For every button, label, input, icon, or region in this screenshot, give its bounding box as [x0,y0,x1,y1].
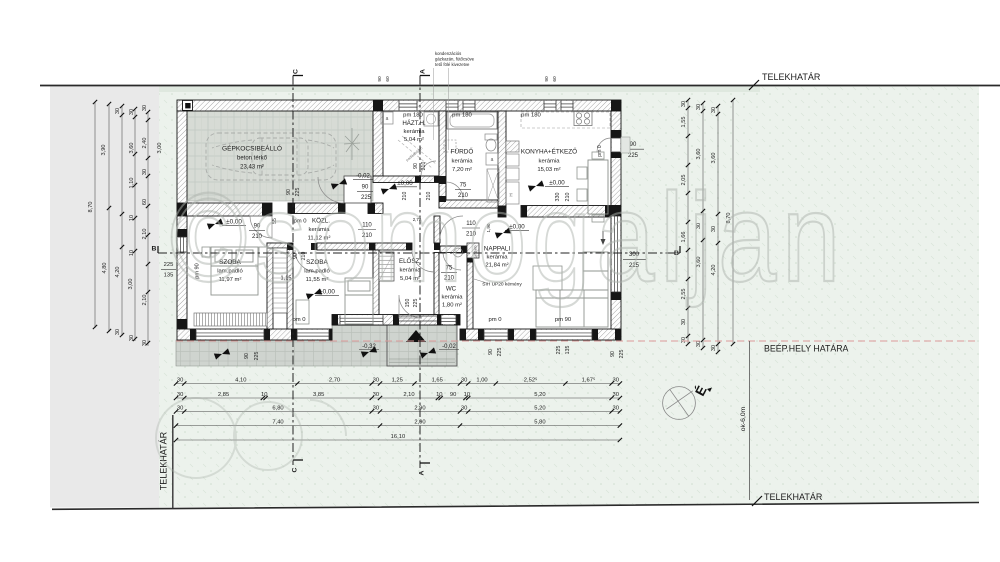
svg-text:©somogaljan: ©somogaljan [170,167,846,308]
svg-text:30: 30 [177,392,183,398]
svg-text:7,40: 7,40 [272,419,283,425]
svg-text:30: 30 [115,108,121,114]
svg-text:225: 225 [556,346,562,355]
svg-text:beton térkő: beton térkő [237,156,268,162]
svg-text:HÁZT.H.: HÁZT.H. [402,120,426,127]
svg-text:GÉPKOCSIBEÁLLÓ: GÉPKOCSIBEÁLLÓ [222,144,282,153]
svg-text:2,10: 2,10 [403,392,414,398]
svg-text:30: 30 [696,104,702,110]
svg-text:3,60: 3,60 [129,143,135,154]
svg-text:10: 10 [464,392,470,398]
svg-text:30: 30 [681,101,687,107]
svg-text:30: 30 [696,341,702,347]
svg-text:tető fölé kivezetve: tető fölé kivezetve [435,62,470,67]
svg-text:1,00: 1,00 [476,377,487,383]
svg-text:a: a [491,157,494,163]
svg-text:8,70: 8,70 [88,202,94,213]
svg-text:5,20: 5,20 [534,392,545,398]
svg-text:225: 225 [619,350,625,359]
svg-text:30: 30 [373,377,379,383]
svg-text:4,10: 4,10 [235,377,246,383]
svg-text:10: 10 [436,392,442,398]
svg-text:pm 0: pm 0 [292,317,306,323]
svg-text:30: 30 [461,377,467,383]
svg-text:10: 10 [261,392,267,398]
svg-text:3,00: 3,00 [157,143,163,154]
svg-text:2,10: 2,10 [142,229,148,240]
svg-text:60: 60 [385,76,391,82]
svg-text:2,10: 2,10 [142,295,148,306]
svg-text:30: 30 [613,392,619,398]
svg-text:2,70: 2,70 [329,377,340,383]
svg-text:FÜRDŐ: FÜRDŐ [451,147,474,156]
svg-text:30: 30 [461,405,467,411]
svg-text:kerámia: kerámia [452,159,474,165]
svg-text:KONYHA+ÉTKEZŐ: KONYHA+ÉTKEZŐ [521,147,577,156]
svg-text:10: 10 [129,215,135,221]
svg-text:30: 30 [142,105,148,111]
svg-text:-0,02: -0,02 [442,344,456,350]
svg-text:pm 90: pm 90 [555,317,572,323]
svg-text:TELEKHATÁR: TELEKHATÁR [764,492,823,502]
svg-text:30: 30 [115,329,121,335]
svg-text:3,85: 3,85 [313,392,324,398]
svg-text:4,20: 4,20 [115,267,121,278]
svg-text:pm 180: pm 180 [452,113,472,119]
svg-text:90: 90 [450,392,456,398]
svg-text:B: B [152,246,157,253]
svg-text:5,20: 5,20 [534,405,545,411]
svg-text:4,80: 4,80 [102,263,108,274]
svg-text:kerámia: kerámia [404,129,426,135]
svg-text:30: 30 [373,405,379,411]
svg-text:kondenzációs: kondenzációs [435,51,461,56]
svg-text:90: 90 [488,349,494,355]
svg-text:60: 60 [142,199,148,205]
svg-text:30: 30 [129,335,135,341]
svg-text:30: 30 [129,109,135,115]
svg-text:90: 90 [377,76,383,82]
svg-text:TELEKHATÁR: TELEKHATÁR [762,72,821,82]
svg-text:a: a [386,116,389,122]
svg-text:1,10: 1,10 [129,178,135,189]
svg-text:16,10: 16,10 [391,434,406,440]
svg-text:90: 90 [630,142,637,148]
svg-text:30: 30 [613,405,619,411]
svg-text:30: 30 [142,169,148,175]
svg-text:1,67⁵: 1,67⁵ [582,376,596,383]
svg-text:3,60: 3,60 [696,149,702,160]
svg-text:C: C [293,69,300,74]
svg-text:10: 10 [129,250,135,256]
svg-text:225: 225 [254,352,260,361]
svg-text:A: A [419,470,426,475]
svg-text:3,60: 3,60 [711,153,717,164]
svg-text:2,40: 2,40 [142,138,148,149]
svg-text:3,90: 3,90 [101,145,107,156]
svg-text:6,80: 6,80 [272,405,283,411]
svg-text:kerámia: kerámia [539,159,561,165]
svg-text:3,00: 3,00 [128,279,134,290]
svg-text:BEÉP.HELY HATÁRA: BEÉP.HELY HATÁRA [764,344,849,354]
svg-text:5,04 m²: 5,04 m² [404,137,424,143]
svg-text:30: 30 [681,337,687,343]
svg-text:C: C [292,467,299,472]
svg-text:1,65: 1,65 [432,377,443,383]
svg-text:2,85: 2,85 [218,392,229,398]
svg-text:30: 30 [681,319,687,325]
svg-text:pm 0: pm 0 [488,317,502,323]
svg-text:5,80: 5,80 [534,419,545,425]
svg-text:pm 180: pm 180 [521,113,541,119]
svg-text:pm 0: pm 0 [597,145,603,157]
svg-text:225: 225 [497,348,503,357]
svg-text:225: 225 [628,153,639,159]
svg-text:60: 60 [552,76,558,82]
svg-text:2,52⁵: 2,52⁵ [524,376,538,383]
svg-text:90: 90 [544,76,550,82]
svg-text:gázkazán, fütőcsöve: gázkazán, fütőcsöve [435,57,475,62]
svg-text:A: A [420,69,427,74]
svg-text:30: 30 [177,377,183,383]
svg-text:1,55: 1,55 [681,117,687,128]
svg-text:30: 30 [373,392,379,398]
svg-text:30: 30 [711,345,717,351]
svg-text:135: 135 [565,346,571,355]
svg-text:90: 90 [244,353,250,359]
svg-text:30: 30 [613,377,619,383]
svg-text:30: 30 [711,107,717,113]
svg-text:ok-6,0m: ok-6,0m [740,406,747,431]
svg-text:90: 90 [610,351,616,357]
svg-text:30: 30 [142,340,148,346]
svg-text:1,25: 1,25 [392,377,403,383]
svg-text:30: 30 [177,405,183,411]
